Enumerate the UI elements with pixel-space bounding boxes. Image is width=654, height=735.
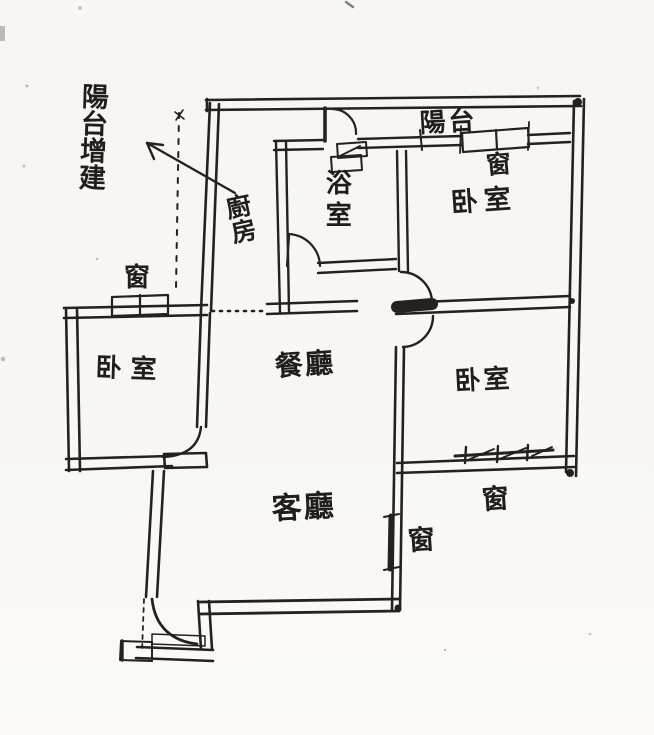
wall-right xyxy=(566,99,584,476)
label-window-top-right-bedroom: 窗 xyxy=(485,151,512,179)
door-arc xyxy=(289,234,320,266)
balcony-addition-arrow xyxy=(147,143,235,193)
label-bathroom: 浴室 xyxy=(322,169,349,233)
bathroom-west-wall xyxy=(276,142,289,312)
living-bottom-wall xyxy=(200,599,402,614)
bottom-right-bedroom-door-arc xyxy=(403,316,433,347)
bathroom-south-wall xyxy=(318,259,396,273)
bathroom-window xyxy=(331,142,367,172)
label-bedroom-left: 卧室 xyxy=(95,355,166,385)
label-window-living-room: 窗 xyxy=(407,526,436,556)
south-wall xyxy=(66,456,172,470)
balcony-addition-dashed-line xyxy=(175,110,184,288)
bathroom-door xyxy=(287,234,320,266)
entrance-door-swing-dashed xyxy=(142,599,144,652)
left-bedroom-walls xyxy=(64,305,207,471)
bathroom-east-wall xyxy=(397,151,408,271)
door-arc xyxy=(332,109,356,134)
label-window-left-bedroom: 窗 xyxy=(124,265,150,292)
corner-blob xyxy=(574,98,582,106)
entrance xyxy=(120,471,213,661)
label-bedroom-bottom-right: 卧室 xyxy=(454,366,513,396)
west-wall xyxy=(66,308,80,471)
label-balcony: 陽台 xyxy=(419,108,478,138)
living-room-window xyxy=(390,516,391,569)
entrance-door-arc xyxy=(152,599,197,644)
corner-blob xyxy=(566,469,574,477)
bottom-right-bedroom-south-wall xyxy=(397,445,574,473)
living-west-wall xyxy=(146,471,164,597)
left-bedroom-east-wall xyxy=(197,311,210,427)
top-right-bedroom-door-arc xyxy=(401,272,432,303)
floor-plan-sketch-page: 陽台增建 廚房 陽台 浴室 卧室 窗 窗 卧室 餐廳 卧室 窗 窗 客廳 xyxy=(0,0,654,735)
label-bedroom-top-right: 卧室 xyxy=(450,185,518,218)
living-east-wall xyxy=(384,347,404,610)
wall-top xyxy=(206,96,581,111)
label-balcony-addition: 陽台增建 xyxy=(74,82,107,203)
label-window-bottom-right-bedroom: 窗 xyxy=(481,485,510,515)
balcony-door xyxy=(325,108,356,141)
label-living-room: 客廳 xyxy=(271,491,337,526)
right-bedrooms-divider-wall xyxy=(396,296,575,314)
kitchen-west-wall xyxy=(197,103,219,427)
label-dining-room: 餐廳 xyxy=(274,348,336,382)
entrance-bottom-wall xyxy=(136,647,213,661)
